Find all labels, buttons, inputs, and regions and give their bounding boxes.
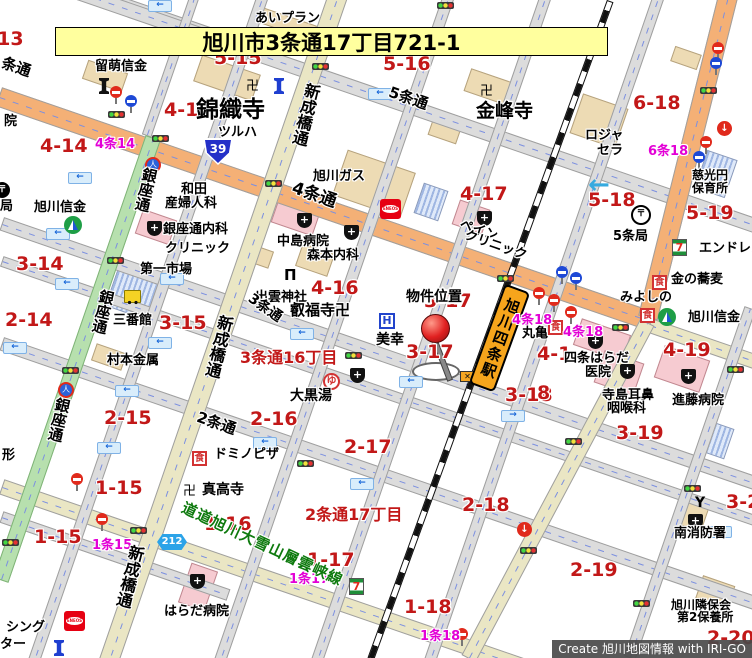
poi-label: 叡福寺卍 <box>290 303 350 319</box>
poi-label: 和田 <box>181 183 207 197</box>
shopping-icon-icon <box>124 290 141 303</box>
hospital-icon-icon: + <box>681 369 696 384</box>
traffic-light-icon <box>62 367 79 374</box>
poi-label: セラ <box>597 144 623 158</box>
temple-icon-icon: 卍 <box>480 85 493 98</box>
chome-number: 4条14 <box>95 138 135 152</box>
poi-label: 中島病院 <box>277 235 329 249</box>
poi-label: 留萌信金 <box>95 60 147 74</box>
no-entry-sign-icon <box>71 473 83 485</box>
shinkin-icon-icon <box>274 78 284 94</box>
no-entry-sign-icon <box>548 294 560 306</box>
block-number: 6-18 <box>633 94 681 114</box>
map-canvas[interactable]: 旭川市3条通17丁目721-1 旭川四条駅 Create 旭川地図情報 with… <box>0 0 752 658</box>
hospital-icon-icon: + <box>297 213 312 228</box>
temple-icon-icon: 卍 <box>246 80 259 93</box>
traffic-light-icon <box>2 539 19 546</box>
block-number: 2条通17丁目 <box>305 507 402 524</box>
convenience-store-icon-icon: 7 <box>349 578 364 595</box>
one-way-arrow-icon: ← <box>68 172 92 184</box>
street-name: 銀座通 <box>45 396 70 443</box>
poi-label: 真高寺 <box>202 483 244 498</box>
traffic-light-icon <box>684 485 701 492</box>
poi-label: あいプラン <box>255 12 320 26</box>
block-number: 2-16 <box>250 410 298 430</box>
hospital-icon-icon: + <box>190 574 205 589</box>
convenience-store-icon-icon: 7 <box>672 239 687 256</box>
temple-icon-icon: 卍 <box>183 485 196 498</box>
poi-label: 医院 <box>585 366 611 380</box>
block-number: 3-14 <box>16 255 64 275</box>
hotel-icon-icon: H <box>379 313 395 329</box>
block-number: 3-17 <box>406 343 454 363</box>
poi-label: クリニック <box>165 242 230 256</box>
restaurant-icon-icon: 食 <box>652 275 667 290</box>
hospital-icon-icon: + <box>147 221 162 236</box>
shrine-icon-icon: Π <box>284 268 297 283</box>
block-number: 3-15 <box>159 314 207 334</box>
poi-label: 咽喉科 <box>607 402 646 416</box>
traffic-light-icon <box>565 438 582 445</box>
poi-label: 三番館 <box>113 314 152 328</box>
down-arrow-icon-icon: ↓ <box>717 121 732 136</box>
poi-label: ロジャ <box>585 129 623 143</box>
poi-label: 慈光円 <box>692 169 728 182</box>
traffic-light-icon <box>345 352 362 359</box>
block-number: 2-19 <box>570 561 618 581</box>
block-number: 1-15 <box>95 479 143 499</box>
bank-icon-icon <box>658 308 676 326</box>
gas-station-icon-glyph: ENEOS <box>382 205 399 213</box>
poi-label: みよしの <box>620 291 672 305</box>
traffic-light-icon <box>312 63 329 70</box>
no-parking-sign-icon <box>693 151 705 163</box>
gas-station-icon-glyph: ENEOS <box>66 617 83 625</box>
bank-icon-icon <box>64 216 82 234</box>
address-banner: 旭川市3条通17丁目721-1 <box>55 27 608 56</box>
poi-label: ドミノピザ <box>214 448 279 462</box>
poi-label: 保育所 <box>692 182 728 195</box>
route-212-badge-icon: 212 <box>157 534 187 550</box>
gas-station-icon-icon: ENEOS <box>380 199 401 219</box>
no-parking-sign-icon <box>570 272 582 284</box>
traffic-light-icon <box>700 87 717 94</box>
post-office-icon-icon: 〒 <box>0 182 10 198</box>
building <box>670 46 702 70</box>
hospital-icon-icon: + <box>350 368 365 383</box>
poi-label: 第一市場 <box>140 263 192 277</box>
restaurant-icon-icon: 食 <box>192 451 207 466</box>
block-number: 3-20 <box>726 493 752 513</box>
one-way-arrow-icon: ← <box>350 478 374 490</box>
down-arrow-icon-icon: ↓ <box>517 522 532 537</box>
poi-label: 進藤病院 <box>672 394 724 408</box>
poi-label: 旭川信金 <box>34 201 86 215</box>
traffic-light-icon <box>130 527 147 534</box>
property-location-pin[interactable] <box>421 314 450 343</box>
traffic-light-icon <box>633 600 650 607</box>
poi-label: 5条局 <box>613 230 648 244</box>
block-number: 5-19 <box>686 204 734 224</box>
block-number: 1-18 <box>404 598 452 618</box>
poi-label: 四条はらだ <box>564 352 629 366</box>
poi-label: 錦織寺 <box>196 98 265 122</box>
one-way-arrow-icon: ← <box>55 278 79 290</box>
street-name: 条通 <box>0 56 33 81</box>
no-parking-sign-icon <box>125 95 137 107</box>
block-number: 2-18 <box>462 496 510 516</box>
one-way-arrow-icon: → <box>501 410 525 422</box>
one-way-arrow-icon: ← <box>148 0 172 12</box>
block-number: 4-1 <box>164 101 198 121</box>
poi-label: 旭川ガス <box>313 170 365 184</box>
poi-label: 銀座通内科 <box>163 223 228 237</box>
traffic-light-icon <box>297 460 314 467</box>
poi-label: はらだ病院 <box>164 605 229 619</box>
no-parking-sign-icon <box>556 266 568 278</box>
block-number: 4-19 <box>663 341 711 361</box>
map-credit: Create 旭川地図情報 with IRI-GO <box>552 640 752 658</box>
block-number: 4-17 <box>460 185 508 205</box>
no-entry-sign-icon <box>565 306 577 318</box>
block-number: 1-15 <box>34 528 82 548</box>
poi-label: 院 <box>4 115 17 129</box>
gas-station-icon-icon: ENEOS <box>64 611 85 631</box>
block-number: 4-13 <box>0 30 24 50</box>
block-number: 5-16 <box>383 55 431 75</box>
poi-label: シング <box>6 621 45 635</box>
block-number: 4-14 <box>40 137 88 157</box>
poi-label: 第2保養所 <box>677 611 733 624</box>
traffic-light-icon <box>497 275 514 282</box>
hospital-icon-icon: + <box>620 364 635 379</box>
traffic-light-icon <box>265 180 282 187</box>
traffic-light-icon <box>108 111 125 118</box>
poi-label: 産婦人科 <box>165 197 217 211</box>
one-way-arrow-icon: ← <box>290 328 314 340</box>
block-number: 3-19 <box>616 424 664 444</box>
no-entry-sign-icon <box>110 86 122 98</box>
building <box>413 183 448 222</box>
street-name: 2条通 <box>195 410 238 438</box>
traffic-light-icon <box>107 257 124 264</box>
block-number: 2-17 <box>344 438 392 458</box>
crossing-icon-icon: 人 <box>58 382 74 398</box>
poi-label: 美幸 <box>376 333 404 348</box>
one-way-arrow-icon: ← <box>148 337 172 349</box>
no-entry-sign-icon <box>700 136 712 148</box>
poi-label: 丸亀 <box>522 327 548 341</box>
block-number: 2-14 <box>5 311 53 331</box>
chome-number: 4条18 <box>563 326 603 340</box>
block-number: 4-16 <box>311 279 359 299</box>
one-way-arrow-icon: ← <box>3 342 27 354</box>
fire-station-icon-icon: Y <box>695 495 705 511</box>
block-number: 8 <box>537 384 550 404</box>
address-text: 旭川市3条通17丁目721-1 <box>203 27 461 57</box>
poi-label: 旭川信金 <box>688 311 740 325</box>
one-way-arrow-icon: ← <box>399 376 423 388</box>
one-way-arrow-icon: ← <box>115 385 139 397</box>
pin-label: 物件位置 <box>406 290 462 305</box>
poi-label: 形 <box>2 449 15 463</box>
poi-label: ター <box>0 638 26 652</box>
traffic-light-icon <box>520 547 537 554</box>
poi-label: ツルハ <box>218 126 257 140</box>
traffic-light-icon <box>152 135 169 142</box>
block-number: 5-18 <box>588 191 636 211</box>
poi-label: 金の蕎麦 <box>671 273 723 287</box>
no-parking-sign-icon <box>710 57 722 69</box>
poi-label: 金峰寺 <box>476 102 533 122</box>
traffic-light-icon <box>727 366 744 373</box>
no-entry-sign-icon <box>712 42 724 54</box>
block-number: 2-15 <box>104 409 152 429</box>
shinkin-icon-icon <box>54 640 64 656</box>
poi-label: 森本内科 <box>307 249 359 263</box>
chome-number: 6条18 <box>648 145 688 159</box>
traffic-light-icon <box>612 324 629 331</box>
poi-label: 局 <box>0 200 13 214</box>
poi-label: 村本金属 <box>107 354 159 368</box>
poi-label: エンドレス <box>699 242 752 256</box>
traffic-light-icon <box>437 2 454 9</box>
chome-number: 1条18 <box>420 630 460 644</box>
poi-label: 大黒湯 <box>290 389 332 404</box>
restaurant-icon-icon: 食 <box>640 308 655 323</box>
hospital-icon-icon: + <box>344 225 359 240</box>
one-way-arrow-icon: ← <box>97 442 121 454</box>
poi-label: 南消防署 <box>674 527 726 541</box>
no-entry-sign-icon <box>96 513 108 525</box>
no-entry-sign-icon <box>533 287 545 299</box>
block-number: 3条通16丁目 <box>240 350 337 367</box>
